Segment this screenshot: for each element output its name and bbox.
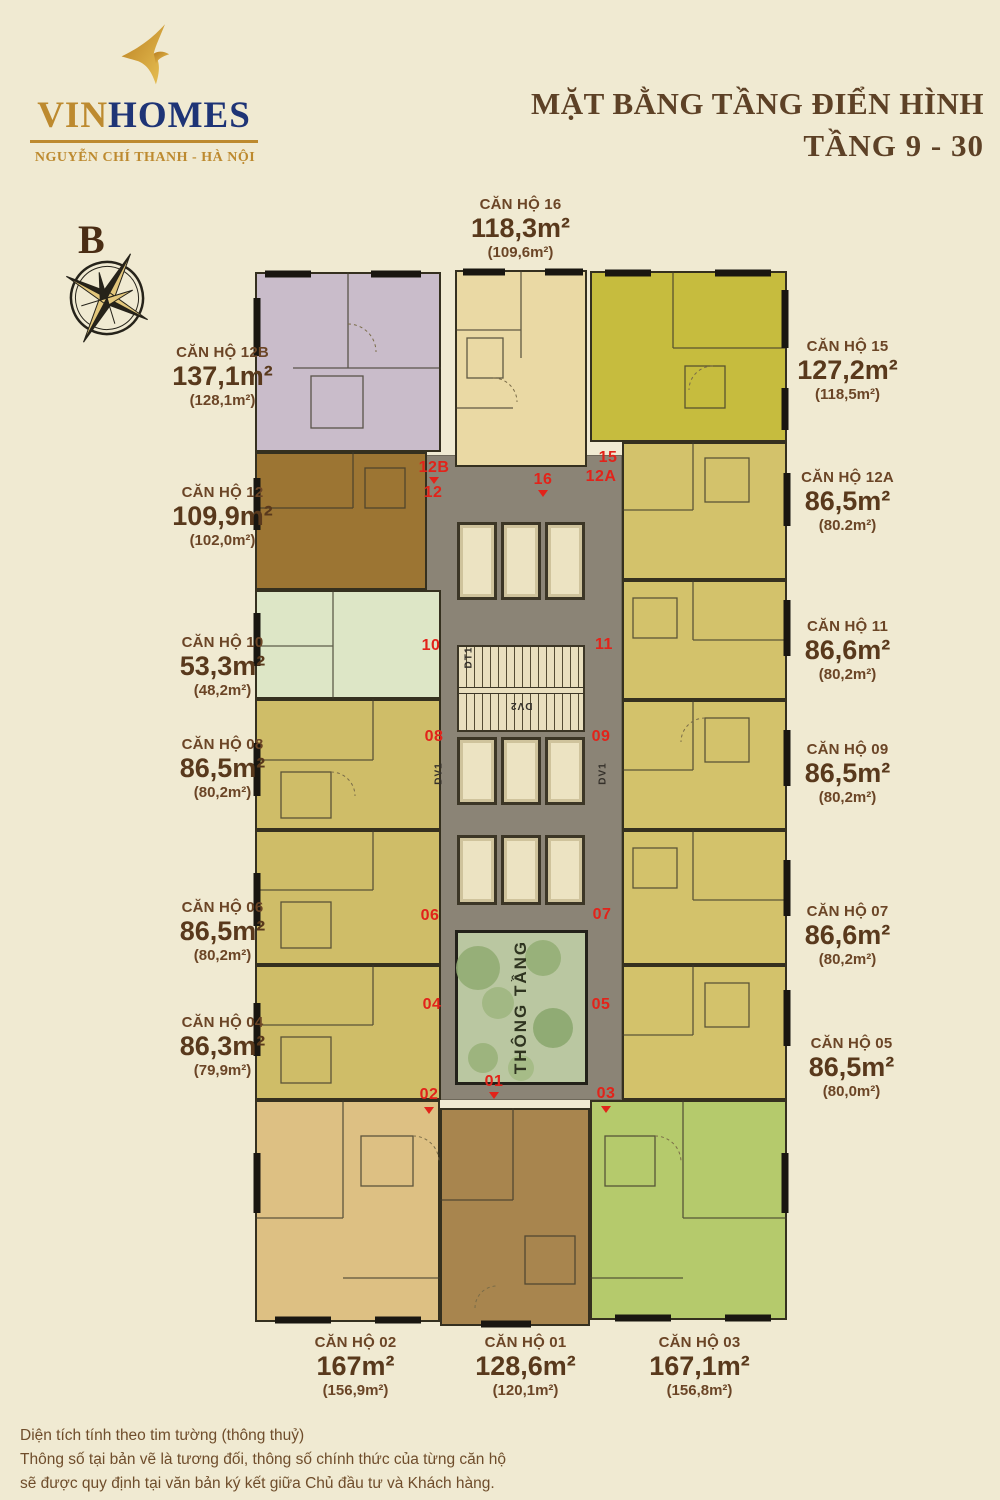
plan-number-15: 15 [599, 449, 618, 467]
unit-area: 86,6m² [760, 921, 935, 949]
plan-number-04: 04 [423, 996, 442, 1014]
unit-area: 167,1m² [612, 1352, 787, 1380]
unit-name: CĂN HỘ 16 [433, 196, 608, 213]
unit-name: CĂN HỘ 02 [268, 1334, 443, 1351]
core-label-dv1-left: DV1 [434, 762, 445, 784]
unit-info-08: CĂN HỘ 08 86,5m² (80,2m²) [135, 736, 310, 801]
unit-info-04: CĂN HỘ 04 86,3m² (79,9m²) [135, 1014, 310, 1079]
door-marker [601, 1106, 611, 1113]
unit-block-15 [590, 271, 787, 442]
unit-area: 86,5m² [760, 487, 935, 515]
stair-core [457, 645, 585, 732]
unit-info-02: CĂN HỘ 02 167m² (156,9m²) [268, 1334, 443, 1399]
unit-block-01 [440, 1108, 590, 1326]
unit-info-06: CĂN HỘ 06 86,5m² (80,2m²) [135, 899, 310, 964]
plan-number-03: 03 [597, 1085, 616, 1103]
unit-area: 86,5m² [764, 1053, 939, 1081]
unit-area: 86,6m² [760, 636, 935, 664]
unit-area: 127,2m² [760, 356, 935, 384]
unit-net-area: (80.2m²) [760, 517, 935, 534]
unit-area: 86,3m² [135, 1032, 310, 1060]
unit-net-area: (109,6m²) [433, 244, 608, 261]
elevator-shaft [501, 737, 541, 805]
unit-info-10: CĂN HỘ 10 53,3m² (48,2m²) [135, 634, 310, 699]
unit-block-16 [455, 270, 587, 467]
unit-name: CĂN HỘ 10 [135, 634, 310, 651]
unit-info-16: CĂN HỘ 16 118,3m² (109,6m²) [433, 196, 608, 261]
door-marker [538, 490, 548, 497]
elevator-shaft [457, 522, 497, 600]
unit-net-area: (102,0m²) [135, 532, 310, 549]
unit-info-12: CĂN HỘ 12 109,9m² (102,0m²) [135, 484, 310, 549]
unit-net-area: (80,2m²) [135, 784, 310, 801]
unit-info-12a: CĂN HỘ 12A 86,5m² (80.2m²) [760, 469, 935, 534]
core-label-dv1-right: DV1 [598, 762, 609, 784]
unit-net-area: (128,1m²) [135, 392, 310, 409]
unit-area: 167m² [268, 1352, 443, 1380]
door-marker [489, 1092, 499, 1099]
unit-info-01: CĂN HỘ 01 128,6m² (120,1m²) [438, 1334, 613, 1399]
plan-number-06: 06 [421, 907, 440, 925]
elevator-shaft [457, 737, 497, 805]
unit-name: CĂN HỘ 12A [760, 469, 935, 486]
plan-number-01: 01 [485, 1073, 504, 1091]
plan-number-10: 10 [422, 637, 441, 655]
unit-net-area: (118,5m²) [760, 386, 935, 403]
title-line1: MẶT BẰNG TẦNG ĐIỂN HÌNH [531, 86, 984, 122]
unit-name: CĂN HỘ 09 [760, 741, 935, 758]
plan-number-16: 16 [534, 471, 553, 489]
unit-net-area: (80,0m²) [764, 1083, 939, 1100]
unit-name: CĂN HỘ 03 [612, 1334, 787, 1351]
disclaimer: Diện tích tính theo tim tường (thông thu… [20, 1424, 506, 1496]
unit-name: CĂN HỘ 04 [135, 1014, 310, 1031]
plan-number-07: 07 [593, 906, 612, 924]
core-label-dv2: DV2 [510, 700, 532, 711]
unit-area: 118,3m² [433, 214, 608, 242]
elevator-shaft [501, 835, 541, 905]
elevator-shaft [545, 835, 585, 905]
plan-number-12b: 12B [419, 459, 450, 477]
unit-block-05 [622, 965, 787, 1100]
unit-area: 137,1m² [135, 362, 310, 390]
unit-net-area: (79,9m²) [135, 1062, 310, 1079]
unit-block-03 [590, 1100, 787, 1320]
elevator-shaft [545, 737, 585, 805]
elevator-shaft [545, 522, 585, 600]
unit-name: CĂN HỘ 05 [764, 1035, 939, 1052]
unit-block-02 [255, 1100, 440, 1322]
unit-area: 86,5m² [135, 917, 310, 945]
plan-number-09: 09 [592, 728, 611, 746]
unit-area: 128,6m² [438, 1352, 613, 1380]
brand-wordmark: VINHOMES [28, 94, 260, 137]
elevator-shaft [501, 522, 541, 600]
unit-net-area: (156,9m²) [268, 1382, 443, 1399]
unit-net-area: (80,2m²) [760, 666, 935, 683]
unit-name: CĂN HỘ 08 [135, 736, 310, 753]
unit-info-09: CĂN HỘ 09 86,5m² (80,2m²) [760, 741, 935, 806]
unit-info-11: CĂN HỘ 11 86,6m² (80,2m²) [760, 618, 935, 683]
unit-net-area: (80,2m²) [760, 789, 935, 806]
unit-area: 86,5m² [760, 759, 935, 787]
unit-info-15: CĂN HỘ 15 127,2m² (118,5m²) [760, 338, 935, 403]
elevator-shaft [457, 835, 497, 905]
brand-vin: VIN [37, 95, 108, 136]
plan-number-02: 02 [420, 1086, 439, 1104]
plan-number-05: 05 [592, 996, 611, 1014]
unit-net-area: (80,2m²) [760, 951, 935, 968]
unit-info-07: CĂN HỘ 07 86,6m² (80,2m²) [760, 903, 935, 968]
plan-number-08: 08 [425, 728, 444, 746]
floorplan-poster: VINHOMES NGUYỄN CHÍ THANH - HÀ NỘI MẶT B… [0, 0, 1000, 1500]
unit-info-05: CĂN HỘ 05 86,5m² (80,0m²) [764, 1035, 939, 1100]
core-label-dt1: DT1 [463, 647, 474, 669]
unit-net-area: (156,8m²) [612, 1382, 787, 1399]
unit-net-area: (80,2m²) [135, 947, 310, 964]
plan-number-12a: 12A [586, 468, 617, 486]
compass-rose-icon [55, 246, 160, 351]
brand-homes: HOMES [108, 95, 251, 136]
unit-net-area: (48,2m²) [135, 682, 310, 699]
plan-number-11: 11 [595, 636, 613, 654]
title-line2: TẦNG 9 - 30 [531, 128, 984, 164]
plan-number-12: 12 [424, 484, 443, 502]
door-marker [429, 477, 439, 484]
page-title: MẶT BẰNG TẦNG ĐIỂN HÌNH TẦNG 9 - 30 [531, 86, 984, 164]
disclaimer-line3: sẽ được quy định tại văn bản ký kết giữa… [20, 1472, 506, 1496]
door-marker [424, 1107, 434, 1114]
unit-name: CĂN HỘ 07 [760, 903, 935, 920]
unit-name: CĂN HỘ 15 [760, 338, 935, 355]
unit-name: CĂN HỘ 12B [135, 344, 310, 361]
unit-name: CĂN HỘ 11 [760, 618, 935, 635]
unit-net-area: (120,1m²) [438, 1382, 613, 1399]
bird-icon [116, 18, 186, 92]
atrium-label: THÔNG TẦNG [511, 940, 531, 1074]
unit-name: CĂN HỘ 01 [438, 1334, 613, 1351]
unit-name: CĂN HỘ 06 [135, 899, 310, 916]
unit-info-12b: CĂN HỘ 12B 137,1m² (128,1m²) [135, 344, 310, 409]
unit-info-03: CĂN HỘ 03 167,1m² (156,8m²) [612, 1334, 787, 1399]
disclaimer-line2: Thông số tại bản vẽ là tương đối, thông … [20, 1448, 506, 1472]
unit-area: 53,3m² [135, 652, 310, 680]
unit-area: 109,9m² [135, 502, 310, 530]
unit-area: 86,5m² [135, 754, 310, 782]
unit-name: CĂN HỘ 12 [135, 484, 310, 501]
logo-location: NGUYỄN CHÍ THANH - HÀ NỘI [20, 150, 270, 166]
disclaimer-line1: Diện tích tính theo tim tường (thông thu… [20, 1424, 506, 1448]
logo-rule [30, 140, 258, 143]
